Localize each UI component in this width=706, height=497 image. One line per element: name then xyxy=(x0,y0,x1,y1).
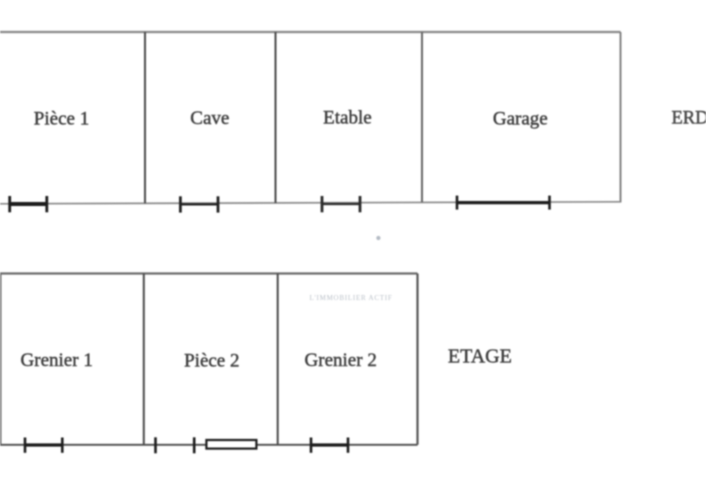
svg-text:L'IMMOBILIER ACTIF: L'IMMOBILIER ACTIF xyxy=(309,294,392,302)
svg-text:ERDGESCHOSS: ERDGESCHOSS xyxy=(672,108,706,128)
svg-text:Pièce 1: Pièce 1 xyxy=(34,109,89,130)
svg-text:Grenier 2: Grenier 2 xyxy=(305,350,377,371)
svg-text:Cave: Cave xyxy=(190,108,229,129)
svg-text:Garage: Garage xyxy=(493,109,548,130)
svg-text:ETAGE: ETAGE xyxy=(448,345,512,367)
svg-text:Pièce 2: Pièce 2 xyxy=(184,351,239,372)
svg-text:Etable: Etable xyxy=(323,107,372,128)
svg-text:Grenier 1: Grenier 1 xyxy=(21,350,93,371)
